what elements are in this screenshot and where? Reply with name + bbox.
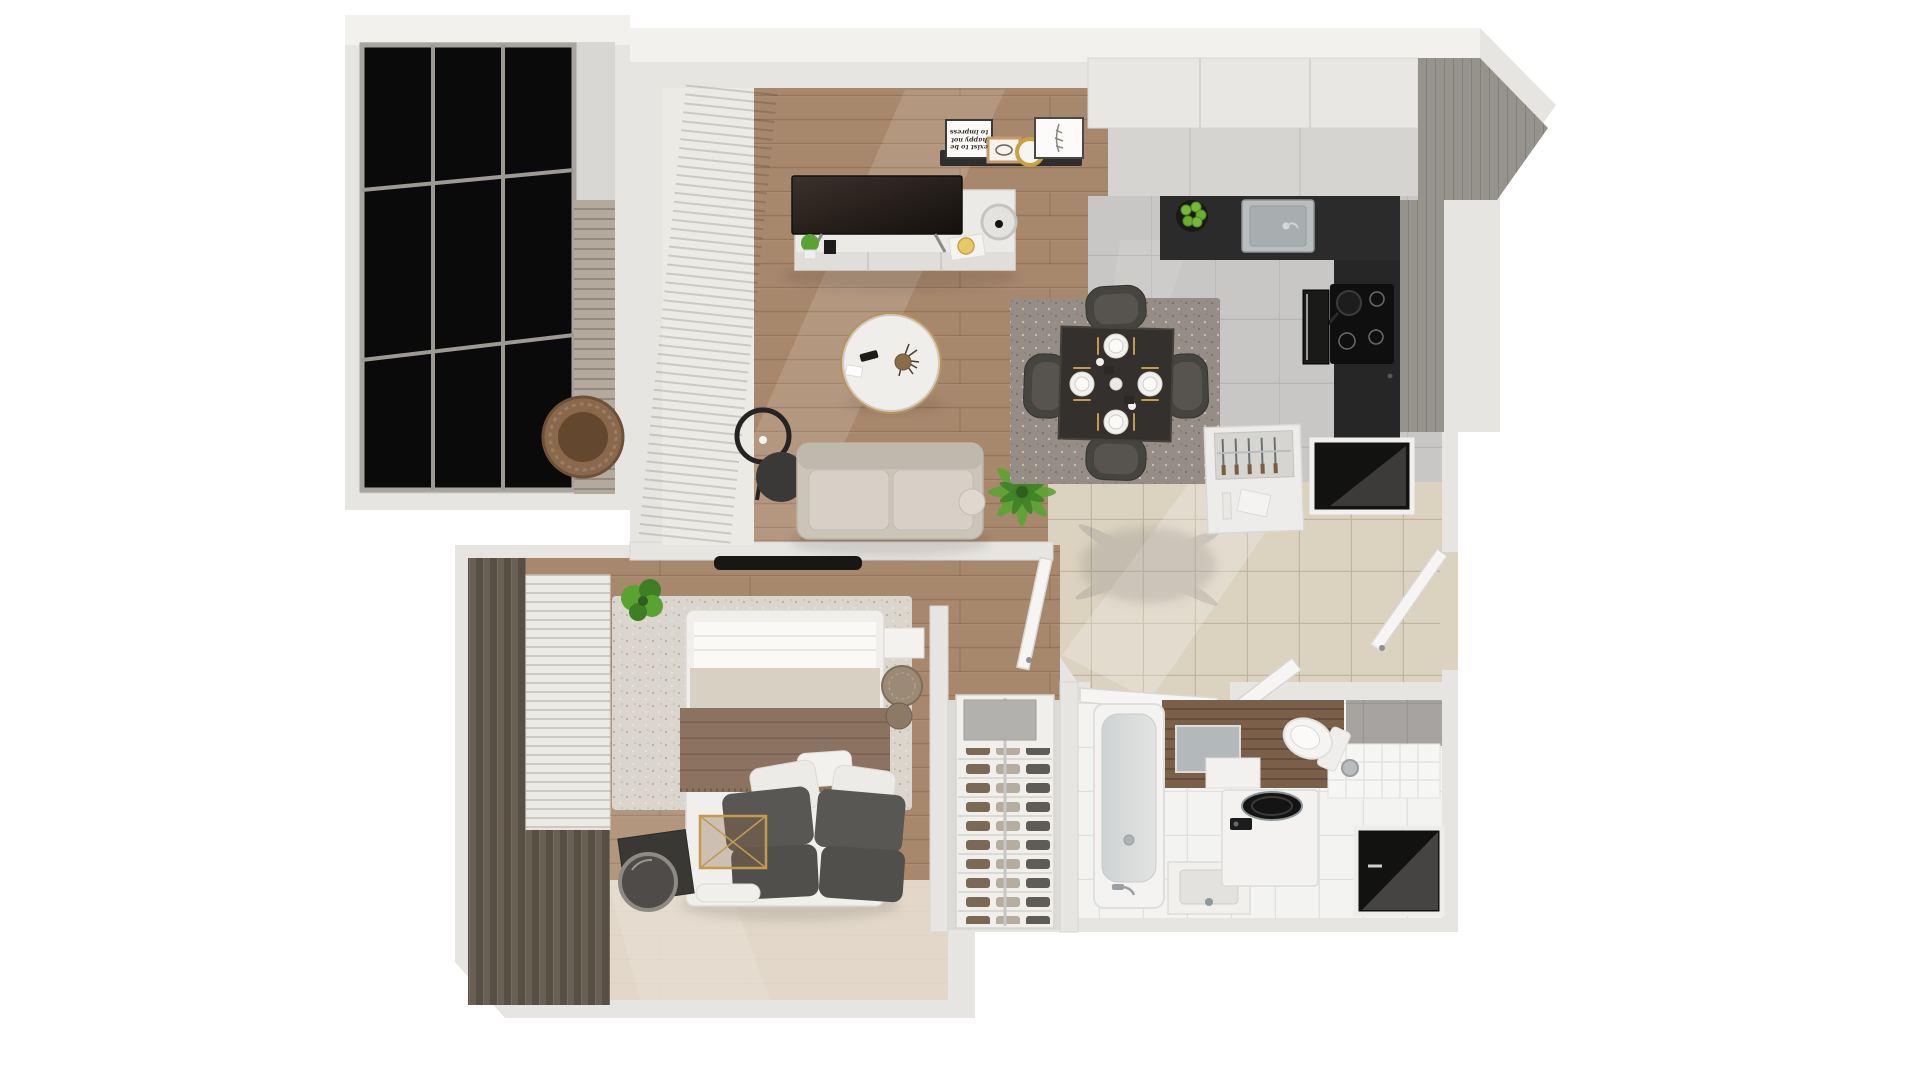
sideboard-speaker [824, 240, 836, 254]
kitchen-upper-cabinets [1088, 58, 1418, 128]
sofa-backrest [797, 443, 983, 469]
washer-knob [1234, 822, 1239, 827]
wall-bathroom-left [1060, 682, 1078, 932]
bedroom-plant-center [638, 596, 648, 606]
bathroom-towel [1206, 758, 1260, 788]
frying-pan [1337, 291, 1361, 315]
cup-1 [1096, 358, 1104, 366]
napkin-2 [1124, 396, 1134, 404]
bedroom-drapes-lower-folds [526, 830, 610, 1005]
bathtub-faucet [1112, 884, 1124, 890]
floorplan-render [0, 0, 1920, 1080]
sideboard-open-drawer [1214, 431, 1294, 480]
concrete-side-grain [1400, 200, 1444, 432]
napkin-1 [1104, 366, 1114, 374]
towel-stack [884, 628, 924, 658]
wicker-basket-small [886, 703, 912, 729]
dining-chair-top-seat [1093, 293, 1139, 325]
balcony [345, 15, 630, 510]
bedroom-blind-slats [526, 575, 610, 830]
wall-bedroom-nook [930, 606, 948, 932]
storage-niche-bathroom [1356, 828, 1442, 914]
kitchen-sink [1242, 200, 1314, 252]
plate-right-inner [1143, 377, 1157, 391]
wicker-basket [882, 666, 922, 706]
storage-niche-hall [1312, 440, 1412, 512]
induction-hob [1323, 284, 1394, 364]
bathtub-basin [1102, 714, 1156, 882]
shoe-rack-group [956, 695, 1054, 928]
washing-machine-group [1222, 790, 1318, 886]
bedroom-wall-tv [714, 556, 862, 570]
sideboard-bottle [1222, 493, 1231, 519]
sofa-bolster [959, 489, 985, 515]
bed-linen-band [690, 668, 880, 708]
bedroom-door-handle [1026, 657, 1032, 663]
kettle-lid [1388, 374, 1393, 379]
leaning-round-mirror [620, 854, 676, 910]
bed-folded-duvet [694, 622, 876, 668]
coffee-table-top [843, 315, 939, 411]
tiled-counter-group [1328, 744, 1440, 798]
bedroom-drapes-folds [468, 558, 526, 1005]
apple-5 [1192, 217, 1202, 227]
shoe-rack-storage-box [964, 700, 1036, 740]
sideboard-plant-pot [804, 250, 816, 259]
kitchen-cabinet-fronts [1108, 128, 1418, 196]
two-seat-sofa [790, 443, 990, 557]
floorplan-stage: exist to be happy not to impress [0, 0, 1920, 1080]
twig-pot [895, 354, 911, 370]
quote-print-text: exist to be happy not to impress [948, 122, 990, 156]
apple-1 [1181, 205, 1191, 215]
pillow-dark-front-right [818, 845, 905, 903]
bed-bolster [696, 884, 760, 902]
bathtub-drain [1124, 835, 1134, 845]
dining-chair-right-seat [1171, 361, 1203, 410]
double-bed [680, 610, 906, 921]
apple-4 [1183, 216, 1193, 226]
sideboard-gold-dish [958, 238, 974, 254]
plate-bottom-inner [1109, 415, 1123, 429]
dining-area [1010, 284, 1220, 484]
centerpiece-vase [1110, 378, 1122, 390]
dining-chair-left-seat [1031, 362, 1063, 411]
coffee-table-paper [845, 365, 862, 378]
entry-door-handle [1379, 645, 1385, 651]
balcony-wall-top-face [345, 15, 630, 45]
bathtub-group [1094, 704, 1164, 908]
plate-left-inner [1075, 377, 1089, 391]
floor-lamp-bulb [759, 436, 767, 444]
balcony-glazed-panels [362, 45, 574, 490]
drum-lamp-finial [995, 220, 1003, 228]
washer-control-panel [1230, 818, 1252, 830]
pillow-dark-right [814, 788, 907, 853]
sideboard-plant [801, 234, 819, 252]
top-wall-face [630, 28, 1480, 62]
wicker-chair-seat [558, 412, 608, 462]
dining-chair-bottom-seat [1093, 443, 1138, 475]
hanging-wicker-chair [543, 397, 623, 477]
bathroom-gray-tile-grid [1346, 700, 1442, 746]
sofa-cushion-left [809, 470, 889, 530]
washbasin-faucet [1205, 898, 1213, 906]
palm-crown [1016, 486, 1028, 498]
plate-top-inner [1109, 339, 1123, 353]
entry-door-opening [1440, 552, 1458, 670]
counter-chrome-cup [1342, 760, 1358, 776]
cutlery-sideboard [1204, 424, 1304, 533]
flat-tv [792, 176, 962, 234]
